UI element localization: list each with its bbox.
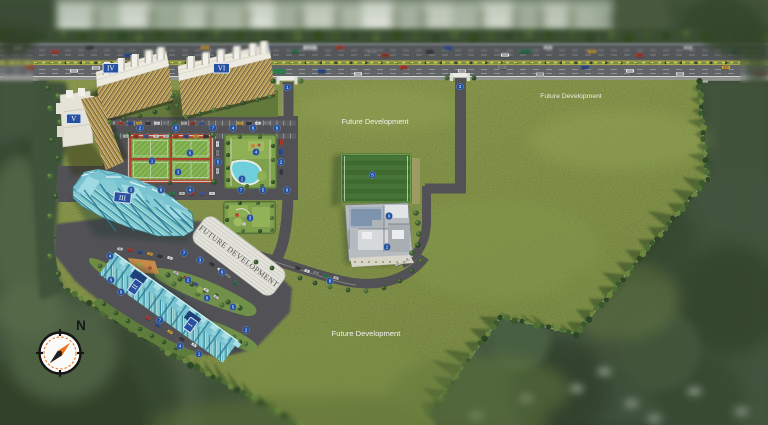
svg-text:1: 1 (198, 352, 201, 357)
svg-text:2: 2 (139, 126, 142, 131)
svg-text:8: 8 (206, 296, 209, 301)
svg-text:5: 5 (371, 173, 374, 178)
svg-text:4: 4 (179, 344, 182, 349)
svg-text:3: 3 (249, 216, 252, 221)
svg-text:VI: VI (218, 65, 226, 73)
svg-text:5: 5 (232, 305, 235, 310)
svg-text:4: 4 (255, 150, 258, 155)
svg-text:8: 8 (160, 188, 163, 193)
svg-text:3: 3 (177, 170, 180, 175)
svg-text:8: 8 (175, 126, 178, 131)
svg-text:4: 4 (189, 188, 192, 193)
svg-text:6: 6 (189, 151, 192, 156)
svg-text:9: 9 (276, 126, 279, 131)
svg-text:6: 6 (286, 188, 289, 193)
svg-text:6: 6 (110, 278, 113, 283)
svg-text:2: 2 (386, 245, 389, 250)
svg-text:5: 5 (217, 160, 220, 165)
svg-text:Future Development: Future Development (332, 329, 402, 338)
svg-text:IV: IV (107, 65, 115, 73)
svg-text:2: 2 (241, 177, 244, 182)
svg-text:9: 9 (120, 290, 123, 295)
svg-text:2: 2 (187, 278, 190, 283)
svg-text:7: 7 (159, 318, 162, 323)
svg-text:3: 3 (130, 188, 133, 193)
svg-text:6: 6 (252, 126, 255, 131)
svg-text:7: 7 (212, 126, 215, 131)
svg-text:V: V (71, 115, 77, 123)
svg-text:Future Development: Future Development (342, 117, 409, 126)
svg-text:7: 7 (183, 251, 186, 256)
svg-text:7: 7 (240, 188, 243, 193)
svg-text:1: 1 (151, 159, 154, 164)
svg-text:3: 3 (459, 84, 462, 89)
svg-text:8: 8 (329, 279, 332, 284)
svg-text:6: 6 (221, 270, 224, 275)
svg-text:4: 4 (232, 126, 235, 131)
svg-text:N: N (76, 318, 86, 333)
svg-text:2: 2 (245, 328, 248, 333)
svg-text:3: 3 (199, 258, 202, 263)
svg-text:9: 9 (388, 214, 391, 219)
svg-text:5: 5 (262, 188, 265, 193)
svg-text:Future Development: Future Development (540, 93, 602, 100)
svg-text:1: 1 (286, 85, 289, 90)
svg-text:4: 4 (109, 254, 112, 259)
svg-text:2: 2 (280, 160, 283, 165)
